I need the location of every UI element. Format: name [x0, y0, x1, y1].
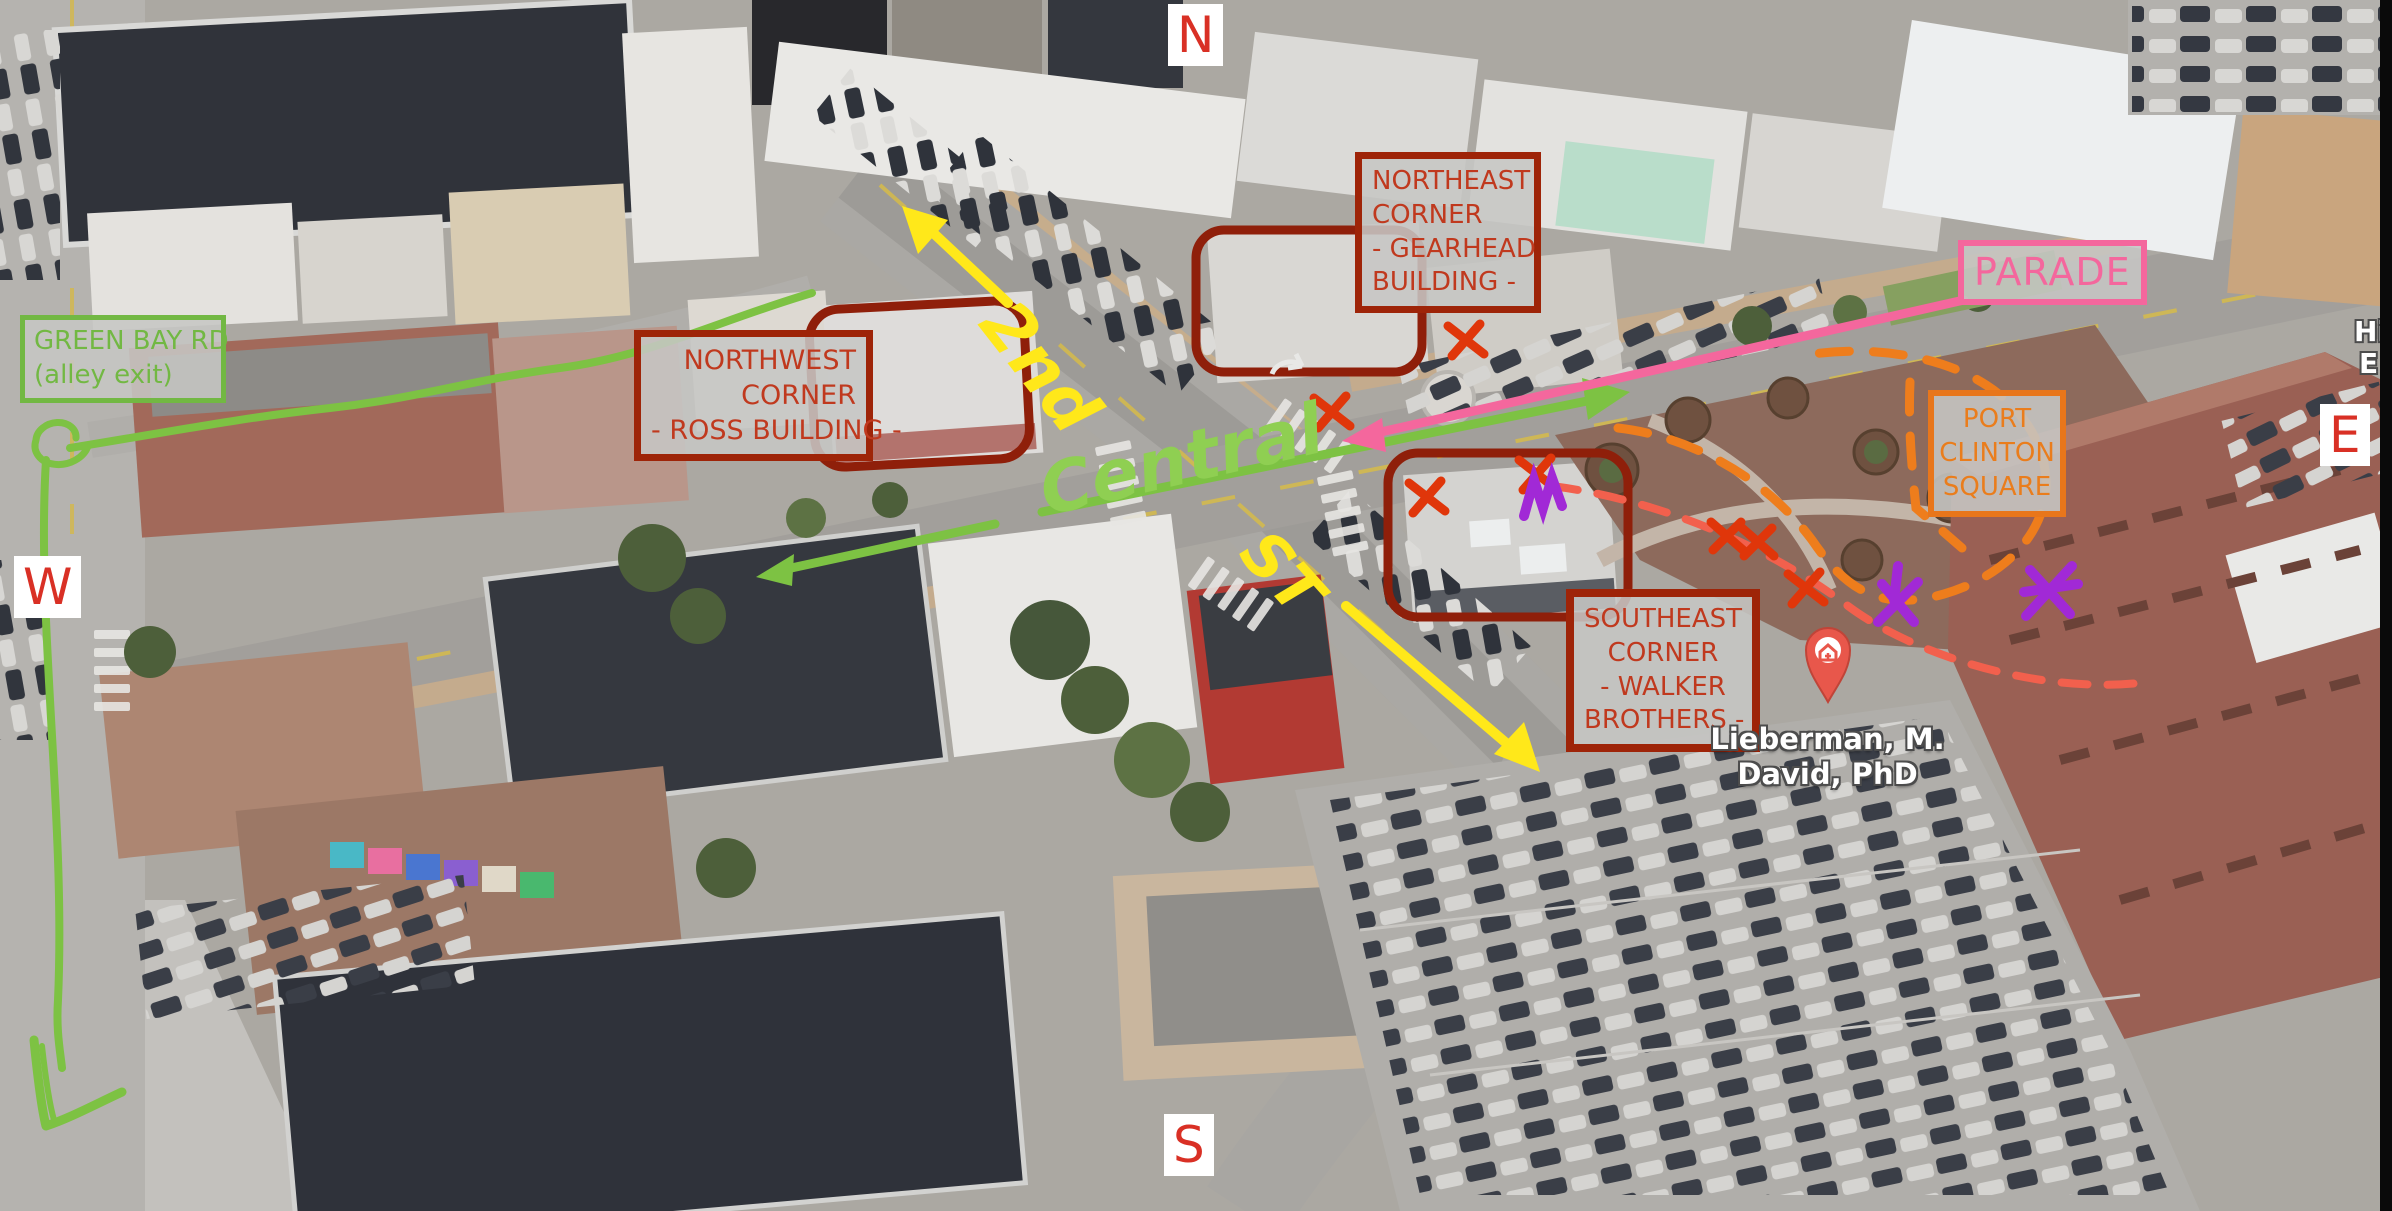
label-line: - ROSS BUILDING -	[651, 413, 856, 448]
port-clinton-square-label: PORT CLINTON SQUARE	[1928, 390, 2066, 517]
poi-pin-icon[interactable]	[1800, 620, 1856, 704]
label-line: CORNER	[1584, 637, 1742, 671]
label-line: NORTHEAST	[1372, 165, 1524, 199]
parade-label: PARADE	[1958, 240, 2147, 305]
label-line: BUILDING -	[1372, 266, 1524, 300]
label-line: NORTHWEST	[651, 343, 856, 378]
aerial-map[interactable]: N W E S GREEN BAY RD (alley exit) NORTHW…	[0, 0, 2392, 1211]
northeast-corner-label: NORTHEAST CORNER - GEARHEAD BUILDING -	[1355, 152, 1541, 313]
label-line: - WALKER	[1584, 671, 1742, 705]
label-line: - GEARHEAD	[1372, 233, 1524, 267]
compass-west: W	[14, 556, 81, 618]
label-line: SQUARE	[1938, 471, 2056, 505]
northwest-corner-label: NORTHWEST CORNER - ROSS BUILDING -	[634, 330, 873, 461]
label-line: PORT	[1938, 403, 2056, 437]
label-line: GREEN BAY RD	[34, 325, 212, 359]
poi-line: David, PhD	[1700, 757, 1955, 792]
compass-east: E	[2320, 404, 2370, 466]
green-bay-rd-label: GREEN BAY RD (alley exit)	[20, 315, 226, 403]
compass-south: S	[1164, 1114, 1214, 1176]
label-line: CORNER	[651, 378, 856, 413]
label-line: (alley exit)	[34, 359, 212, 393]
screenshot-edge-strip	[2380, 0, 2392, 1211]
label-line: CORNER	[1372, 199, 1524, 233]
label-line: CLINTON	[1938, 437, 2056, 471]
poi-line: Lieberman, M.	[1700, 722, 1955, 757]
label-line: SOUTHEAST	[1584, 603, 1742, 637]
compass-north: N	[1168, 4, 1223, 66]
poi-label-lieberman[interactable]: Lieberman, M. David, PhD	[1700, 722, 1955, 792]
